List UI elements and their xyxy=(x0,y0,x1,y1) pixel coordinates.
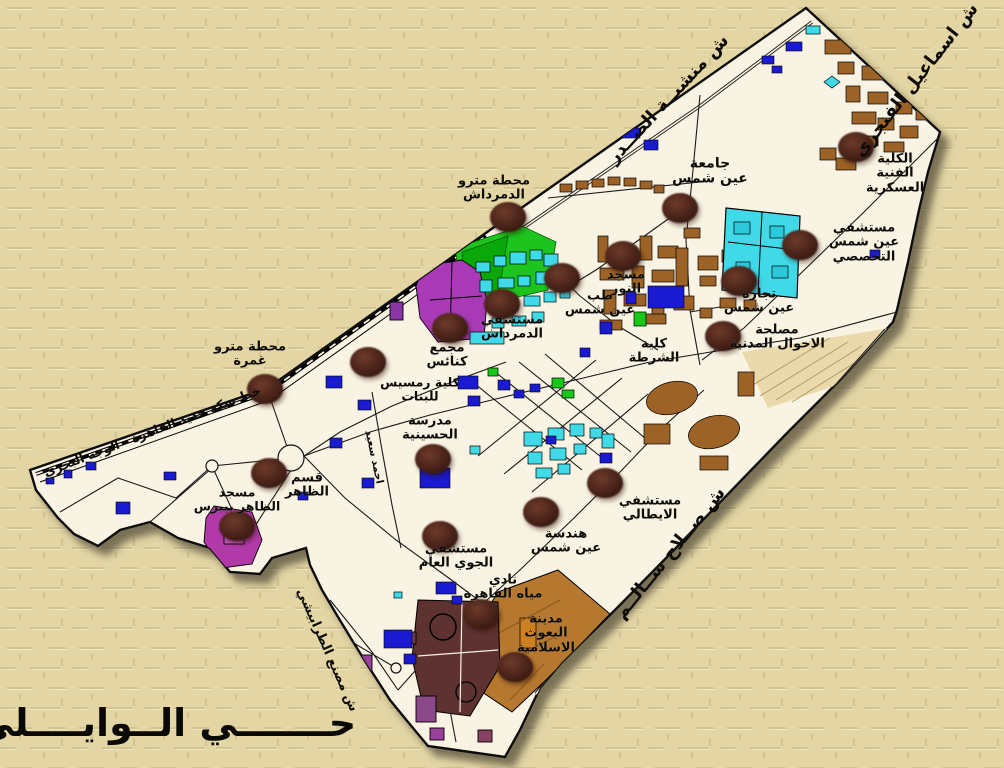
poi-marker-ain-shams-specialized-hospital[interactable] xyxy=(782,230,818,260)
poi-marker-zaher-police-station[interactable] xyxy=(251,458,287,488)
map-canvas xyxy=(0,0,1004,768)
poi-marker-medicine-ain-shams[interactable] xyxy=(605,241,641,271)
poi-marker-demerdash-metro[interactable] xyxy=(490,202,526,232)
poi-marker-demerdash-hospital[interactable] xyxy=(484,289,520,319)
poi-marker-baybars-mosque[interactable] xyxy=(219,511,255,541)
poi-marker-ain-shams-university[interactable] xyxy=(662,193,698,223)
poi-marker-italian-hospital[interactable] xyxy=(587,468,623,498)
poi-marker-civil-status-authority[interactable] xyxy=(705,321,741,351)
poi-marker-husseiniya-school[interactable] xyxy=(415,444,451,474)
poi-marker-nour-mosque[interactable] xyxy=(544,263,580,293)
poi-marker-air-force-hospital[interactable] xyxy=(422,521,458,551)
waily-district-map: ش اسماعيل الفنجريش منشيــة الصــدرش صــل… xyxy=(0,0,1004,768)
poi-marker-cairo-water-club[interactable] xyxy=(463,599,499,629)
poi-marker-engineering-ain-shams[interactable] xyxy=(523,497,559,527)
poi-marker-islamic-missions-city[interactable] xyxy=(497,652,533,682)
poi-marker-churches-complex[interactable] xyxy=(432,313,468,343)
poi-marker-ramses-college[interactable] xyxy=(350,347,386,377)
poi-marker-commerce-ain-shams[interactable] xyxy=(721,266,757,296)
district-title: حـــــــي الــوايــــلي xyxy=(0,701,356,745)
